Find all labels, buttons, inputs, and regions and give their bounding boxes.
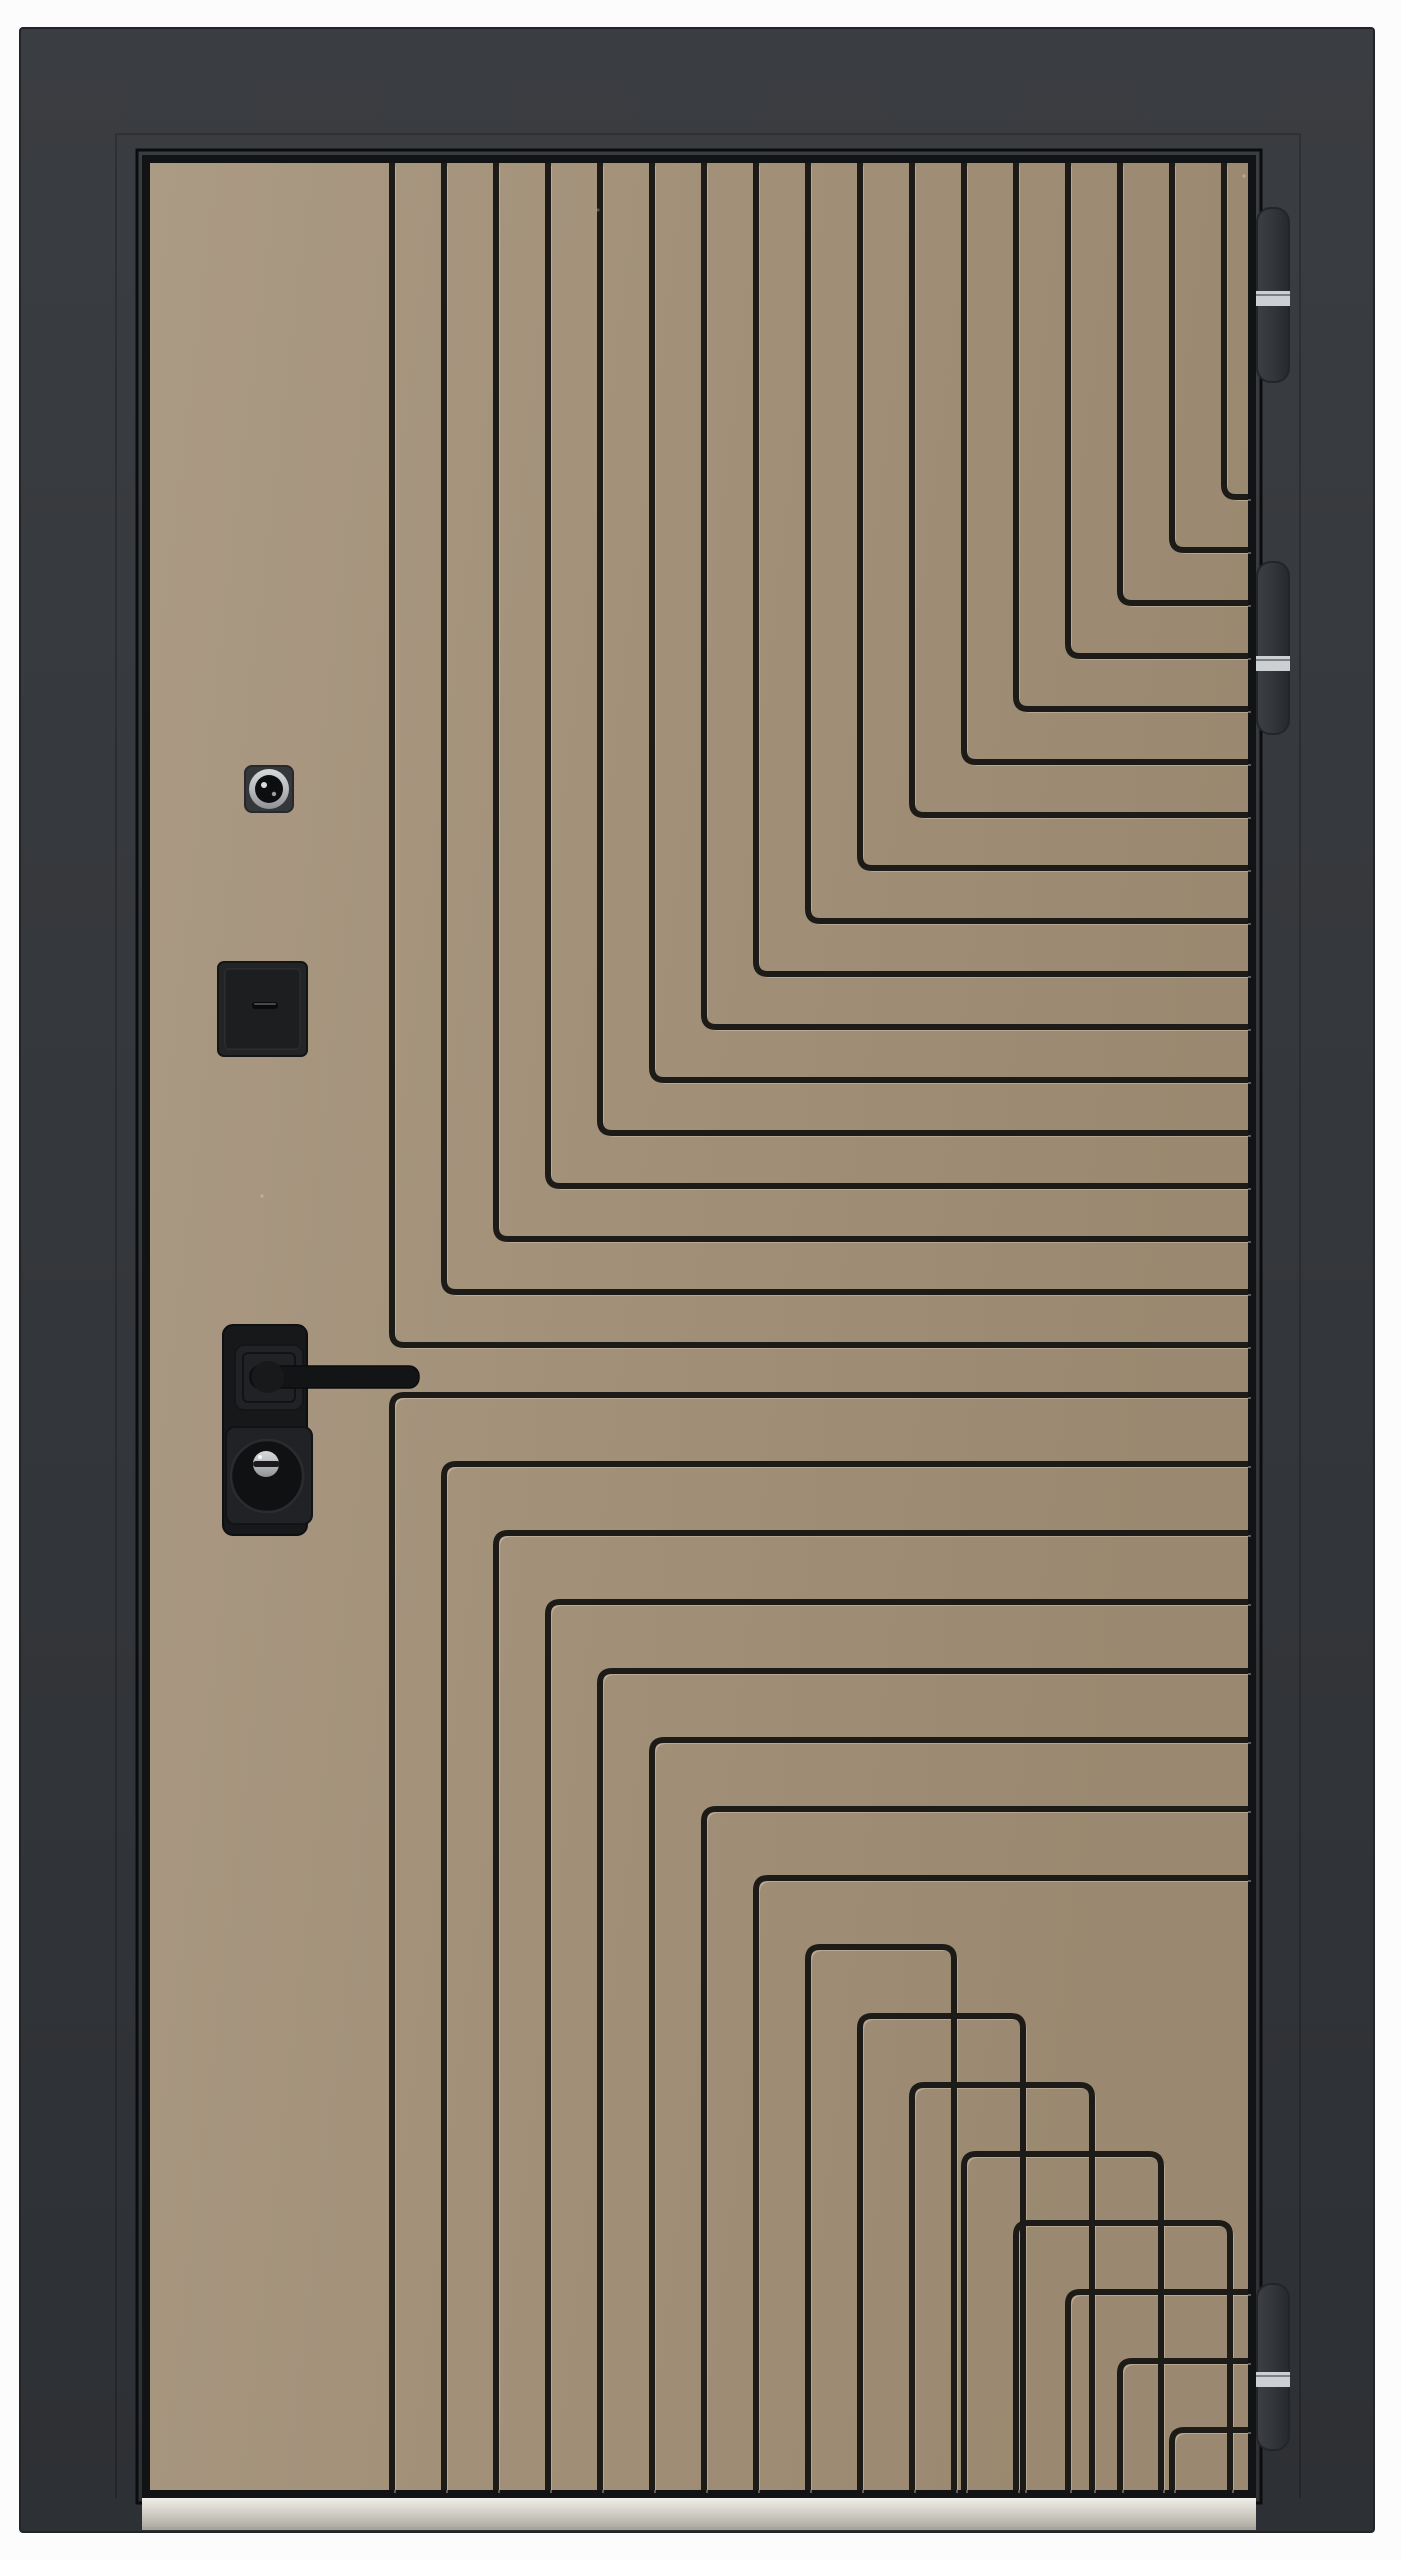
handle-lever-boss <box>252 1361 284 1393</box>
hinge-barrel <box>1257 2284 1289 2450</box>
hinge-barrel <box>1257 562 1289 734</box>
hinge-band <box>1256 291 1290 306</box>
dust-speck-2 <box>260 1194 263 1197</box>
dust-speck-0 <box>596 208 599 211</box>
peephole-glint-1 <box>261 782 267 788</box>
leaf-face <box>150 163 1248 2490</box>
reader-slot-highlight <box>254 1003 276 1005</box>
peephole-lens <box>255 775 283 803</box>
hinge-3 <box>1256 2284 1290 2450</box>
dust-speck-1 <box>1242 174 1245 177</box>
hinge-band-shade <box>1256 294 1290 296</box>
keyway-slot <box>253 1461 280 1467</box>
hinge-band <box>1256 656 1290 671</box>
door-product-photo <box>0 0 1401 2560</box>
hinge-band-shade <box>1256 2375 1290 2377</box>
hinge-band-shade <box>1256 659 1290 661</box>
threshold-sill <box>142 2498 1256 2530</box>
key-disc-glint <box>258 1455 262 1459</box>
hinge-band <box>1256 2372 1290 2387</box>
threshold-bottom-line <box>142 2527 1256 2530</box>
peephole-glint-2 <box>272 792 276 796</box>
hinge-2 <box>1256 562 1290 734</box>
door-illustration <box>0 0 1401 2560</box>
hinge-1 <box>1256 208 1290 382</box>
